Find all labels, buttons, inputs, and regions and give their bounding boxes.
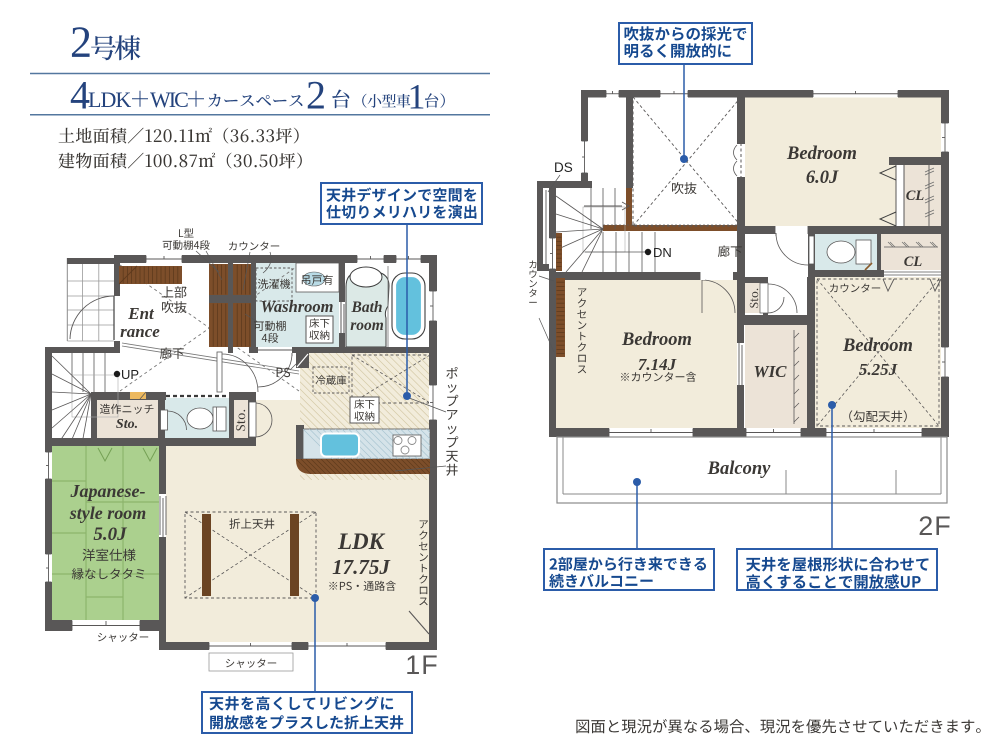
svg-text:rance: rance (120, 322, 160, 341)
svg-text:5.0J: 5.0J (93, 524, 127, 545)
svg-text:Washroom: Washroom (260, 297, 333, 316)
svg-text:7.14J: 7.14J (638, 355, 677, 374)
svg-text:Bedroom: Bedroom (621, 330, 692, 350)
svg-text:17.75J: 17.75J (332, 555, 391, 579)
svg-text:Sto.: Sto. (116, 417, 138, 432)
svg-text:Bedroom: Bedroom (786, 144, 857, 164)
svg-text:CL: CL (904, 254, 923, 270)
svg-text:2: 2 (306, 73, 326, 118)
svg-text:WIC: WIC (150, 87, 188, 112)
svg-text:DS: DS (554, 160, 573, 175)
svg-text:4: 4 (70, 73, 90, 118)
svg-text:Bedroom: Bedroom (842, 336, 913, 356)
svg-text:2F: 2F (918, 511, 952, 541)
svg-text:WIC: WIC (753, 362, 787, 381)
svg-text:room: room (350, 317, 384, 334)
svg-text:style room: style room (69, 503, 147, 523)
svg-text:1: 1 (408, 77, 426, 117)
svg-text:6.0J: 6.0J (806, 168, 839, 188)
svg-text:UP: UP (121, 367, 139, 382)
svg-text:Bath: Bath (350, 299, 382, 316)
svg-text:LDK: LDK (88, 87, 131, 112)
svg-text:CL: CL (906, 188, 925, 204)
svg-text:5.25J: 5.25J (859, 360, 898, 379)
svg-text:LDK: LDK (337, 529, 386, 554)
svg-text:2: 2 (70, 18, 92, 67)
svg-text:1F: 1F (405, 650, 439, 680)
svg-text:DN: DN (653, 245, 672, 260)
svg-text:Ent: Ent (127, 304, 155, 323)
svg-text:Japanese-: Japanese- (70, 481, 146, 501)
svg-text:Balcony: Balcony (707, 459, 771, 479)
